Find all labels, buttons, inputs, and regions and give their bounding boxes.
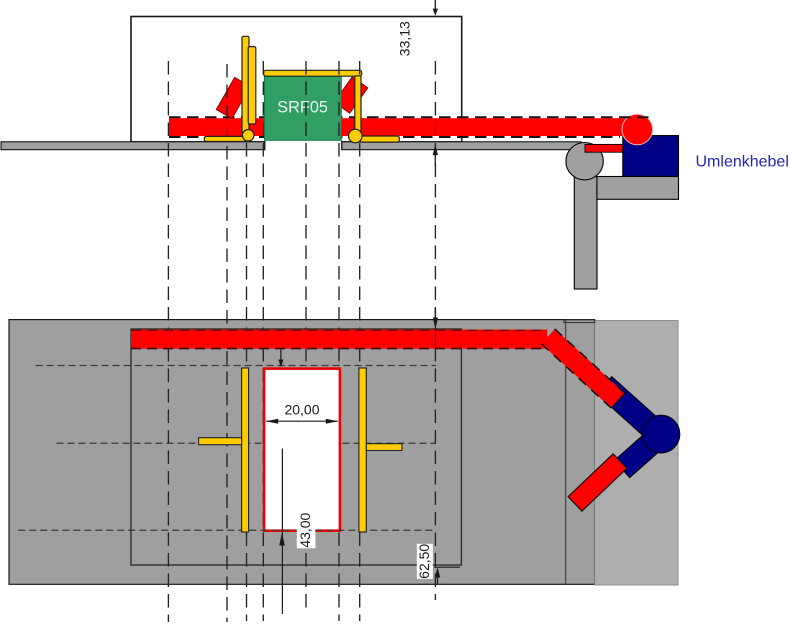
- svg-text:SRF05: SRF05: [277, 98, 328, 116]
- svg-text:43,00: 43,00: [297, 512, 313, 547]
- svg-text:Umlenkhebel: Umlenkhebel: [696, 154, 789, 171]
- svg-text:62,50: 62,50: [416, 544, 432, 579]
- svg-text:33,13: 33,13: [397, 21, 413, 56]
- svg-text:20,00: 20,00: [284, 401, 319, 417]
